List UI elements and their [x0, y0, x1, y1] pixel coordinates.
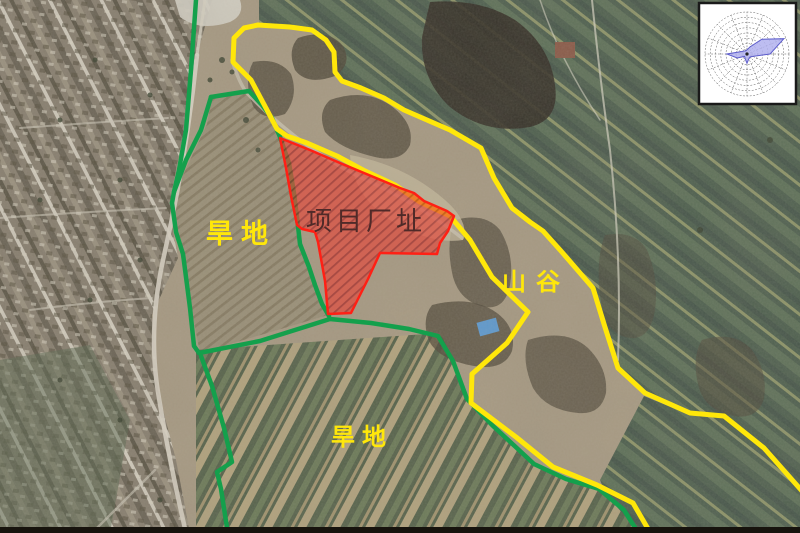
map-container: 旱地 旱地 山谷 项目厂址 [0, 0, 800, 533]
terrain-grain [0, 0, 800, 533]
label-dryland-upper: 旱地 [206, 219, 276, 250]
satellite-map: 旱地 旱地 山谷 项目厂址 [0, 0, 800, 533]
wind-rose-center-dot [745, 52, 748, 55]
wind-rose-inset [699, 3, 796, 104]
label-valley: 山谷 [502, 268, 570, 296]
label-project-site: 项目厂址 [306, 207, 426, 237]
image-bottom-strip [0, 527, 800, 533]
label-dryland-lower: 旱地 [331, 423, 393, 451]
